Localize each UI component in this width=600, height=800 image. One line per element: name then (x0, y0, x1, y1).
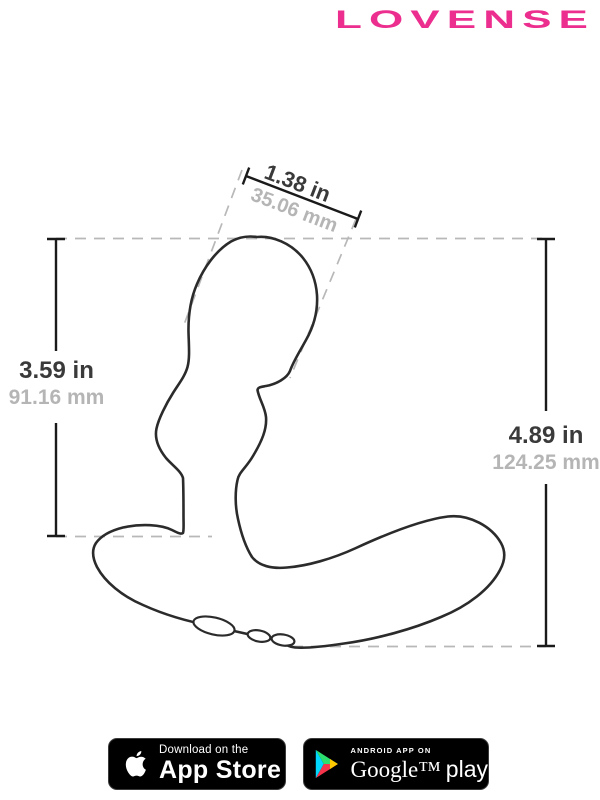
total-height-measurement: 4.89 in 124.25 mm (484, 421, 600, 476)
app-store-tagline: Download on the (159, 744, 281, 756)
apple-icon (122, 749, 149, 779)
extension-line-slant-right (290, 219, 356, 378)
button-small-1 (247, 628, 272, 643)
insertable-height-mm-label: 91.16 mm (0, 385, 113, 411)
google-play-badge[interactable]: ANDROID APP ON Google™play (303, 738, 489, 790)
button-large (192, 613, 237, 639)
product-dimensions-page: LOVENSE (0, 0, 600, 800)
google-play-icon (314, 747, 341, 781)
google-play-tagline: ANDROID APP ON (351, 746, 488, 755)
insertable-height-measurement: 3.59 in 91.16 mm (0, 356, 113, 411)
insertable-height-in-label: 3.59 in (0, 356, 113, 385)
product-outline (93, 236, 504, 647)
button-small-2 (271, 633, 295, 647)
total-height-mm-label: 124.25 mm (484, 450, 600, 476)
google-wordmark: Google™ (351, 757, 441, 782)
total-height-in-label: 4.89 in (484, 421, 600, 450)
app-store-badge[interactable]: Download on the App Store (108, 738, 286, 790)
play-wordmark: play (446, 756, 488, 782)
app-store-name: App Store (159, 756, 281, 785)
google-play-wordmark: Google™play (351, 756, 488, 783)
